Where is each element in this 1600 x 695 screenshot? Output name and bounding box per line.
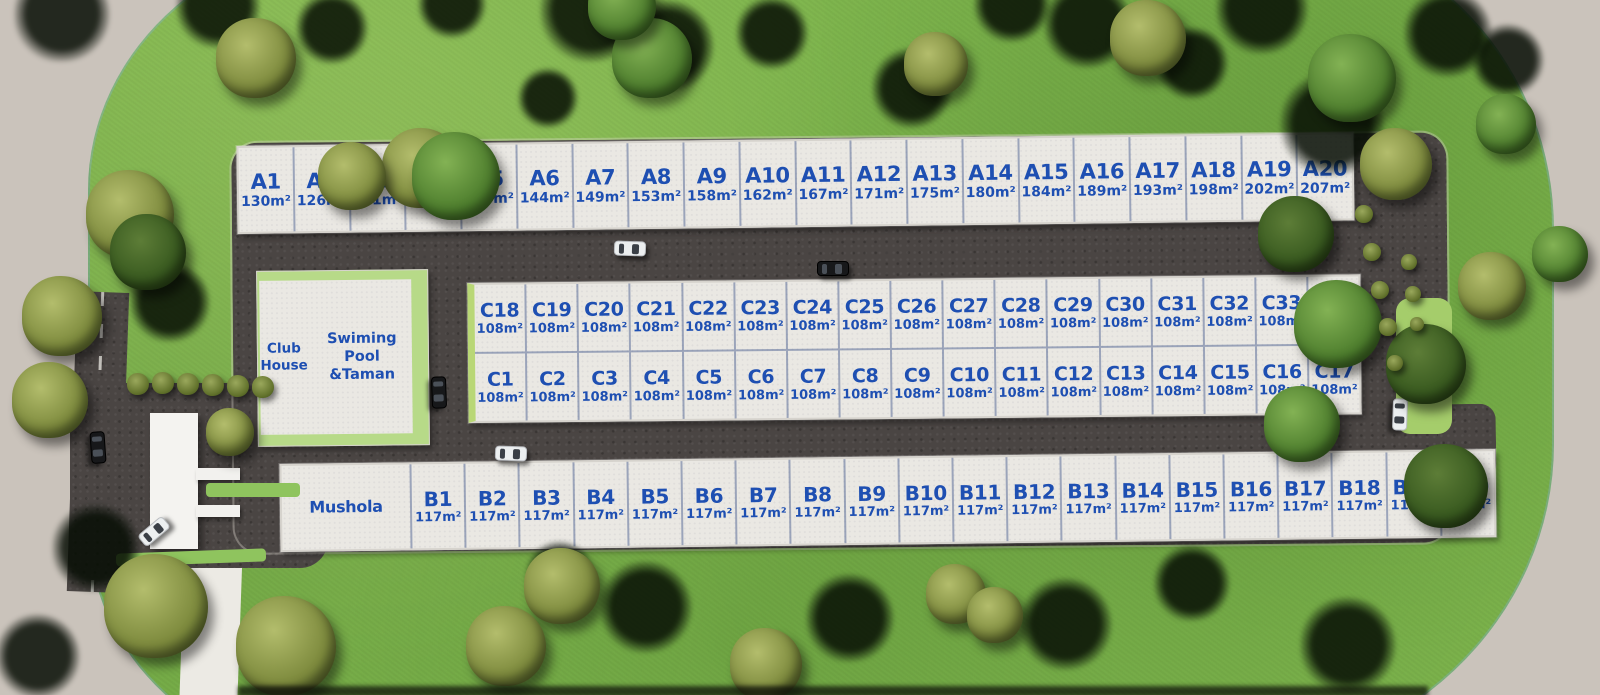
car [89,431,106,464]
plot-A8[interactable]: A8153m² [627,143,684,228]
plot-area: 108m² [1050,316,1097,329]
plot-area: 108m² [789,319,836,332]
plot-B15[interactable]: B15117m² [1168,454,1223,539]
tree [1258,196,1334,272]
entry-median-green [206,483,300,497]
plot-area: 108m² [946,317,993,330]
plot-id: B13 [1067,480,1109,501]
plot-A9[interactable]: A9158m² [682,142,739,227]
tree [12,362,88,438]
tree [110,214,186,290]
plot-area: 117m² [1336,499,1383,513]
plot-id: C11 [1002,365,1042,384]
plot-area: 108m² [685,320,732,333]
plot-area: 117m² [1282,500,1329,514]
bush [1355,205,1373,223]
plot-area: 117m² [957,504,1004,518]
plot-B12[interactable]: B12117m² [1006,456,1061,541]
plot-C20[interactable]: C20108m² [577,283,630,350]
plot-area: 108m² [581,321,628,334]
plot-id: A7 [585,167,616,188]
plot-area: 117m² [1228,500,1275,514]
plot-area: 108m² [633,320,680,333]
plot-C19[interactable]: C19108m² [524,284,577,351]
plot-id: C12 [1054,364,1094,383]
pool-parcel-inner: Club House Swiming Pool &Taman [259,279,413,435]
plot-A18[interactable]: A18198m² [1184,136,1241,221]
tree-shadow [1020,578,1112,670]
row-c-front: C1108m²C2108m²C3108m²C4108m²C5108m²C6108… [475,343,1360,420]
tree-shadow [736,0,808,69]
plot-C8[interactable]: C8108m² [838,350,891,417]
plot-id: C28 [1001,296,1041,315]
tree [1264,386,1340,462]
plot-C3[interactable]: C3108m² [577,352,630,419]
plot-A12[interactable]: A12171m² [850,140,907,225]
tree [904,32,968,96]
bush [1405,286,1421,302]
plot-id: C16 [1262,362,1302,381]
plot-C28[interactable]: C28108m² [994,279,1047,346]
plot-C29[interactable]: C29108m² [1046,279,1099,346]
plot-area: 117m² [632,508,679,522]
plot-id: B4 [586,486,615,506]
tree [1360,128,1432,200]
plot-B18[interactable]: B18117m² [1331,452,1386,537]
plot-area: 108m² [477,391,524,404]
tree [967,587,1023,643]
gate-arm [196,468,240,480]
plot-area: 184m² [1021,184,1071,199]
plot-id: A8 [641,166,672,187]
plot-A16[interactable]: A16189m² [1073,137,1130,222]
plot-area: 198m² [1189,182,1239,197]
car [431,376,447,409]
plot-area: 117m² [794,506,841,520]
plot-area: 117m² [740,506,787,520]
plot-area: 117m² [415,510,462,524]
plot-id: B10 [905,482,947,503]
plot-area: 108m² [737,319,784,332]
plot-C15[interactable]: C15108m² [1203,346,1256,413]
tree [104,554,208,658]
plot-area: 108m² [581,390,628,403]
plot-C23[interactable]: C23108m² [733,282,786,349]
plot-C13[interactable]: C13108m² [1098,347,1151,414]
tree-shadow [1300,597,1396,693]
bottom-edge-shadow [238,686,1428,695]
plot-area: 108m² [790,388,837,401]
tree-shadow [1472,24,1544,96]
plot-id: C2 [539,370,566,389]
plot-C27[interactable]: C27108m² [941,280,994,347]
plot-A13[interactable]: A13175m² [905,139,962,224]
plot-B3[interactable]: B3117m² [518,462,573,547]
plot-C30[interactable]: C30108m² [1098,278,1151,345]
plot-C22[interactable]: C22108m² [681,282,734,349]
plot-id: C30 [1105,295,1145,314]
bush [227,375,249,397]
plot-C24[interactable]: C24108m² [785,281,838,348]
plot-id: C4 [643,369,670,388]
plot-C1[interactable]: C1108m² [475,353,526,420]
plot-id: C14 [1158,363,1198,382]
tree [206,408,254,456]
tree [1110,0,1186,76]
tree [1404,444,1488,528]
bush [1387,355,1403,371]
plot-id: A12 [857,163,902,185]
plot-id: B9 [857,483,886,503]
tree-shadow [1154,545,1230,621]
plot-B4[interactable]: B4117m² [572,462,627,547]
tree [466,606,546,686]
plot-id: C5 [695,368,722,387]
bush [127,373,149,395]
tree [730,628,802,695]
swimming-pool-label: Swiming Pool &Taman [312,329,413,384]
tree [1476,94,1536,154]
plot-area: 117m² [523,509,570,523]
plot-id: C8 [852,367,879,386]
plot-id: A18 [1191,159,1236,181]
plot-B14[interactable]: B14117m² [1114,455,1169,540]
bush [1379,318,1397,336]
plot-mushola[interactable]: Mushola [281,464,410,550]
plot-id: C21 [636,300,676,319]
plot-C11[interactable]: C11108m² [994,348,1047,415]
plot-B11[interactable]: B11117m² [951,457,1006,542]
plot-A17[interactable]: A17193m² [1128,136,1185,221]
plot-area: 108m² [842,387,889,400]
tree [216,18,296,98]
plot-area: 108m² [1155,384,1202,397]
tree [1294,280,1382,368]
bush [177,373,199,395]
plot-area: 117m² [903,504,950,518]
tree [412,132,500,220]
plot-id: A13 [912,163,957,185]
plot-id: B5 [640,486,669,506]
plot-id: B18 [1338,477,1380,498]
plot-id: A10 [745,165,790,187]
plot-id: C15 [1210,363,1250,382]
siteplan-scene: Club House Swiming Pool &Taman A1130m²A2… [0,0,1600,695]
plot-B13[interactable]: B13117m² [1060,456,1115,541]
plot-id: C25 [845,298,885,317]
plot-area: 108m² [841,318,888,331]
plot-id: B3 [532,487,561,507]
plot-area: 167m² [798,187,848,202]
tree [1308,34,1396,122]
plot-B1[interactable]: B1117m² [409,464,464,549]
tree [22,276,102,356]
plot-area: 153m² [631,189,681,204]
plot-id: C7 [800,367,827,386]
plot-area: 175m² [910,186,960,201]
plot-area: 171m² [854,186,904,201]
plot-id: B6 [695,485,724,505]
plot-area: 117m² [849,505,896,519]
plot-B8[interactable]: B8117m² [789,459,844,544]
c-block-strip: C18108m²C19108m²C20108m²C21108m²C22108m²… [467,274,1361,423]
plot-id: C19 [532,301,572,320]
car [817,261,849,276]
plot-C10[interactable]: C10108m² [942,349,995,416]
plot-id: C10 [950,365,990,384]
row-c-back: C18108m²C19108m²C20108m²C21108m²C22108m²… [474,276,1359,351]
plot-area: 180m² [966,185,1016,200]
plot-id: A16 [1080,161,1125,183]
plot-A14[interactable]: A14180m² [961,138,1018,223]
plot-id: B11 [959,482,1001,503]
plot-C2[interactable]: C2108m² [525,353,578,420]
plot-area: 207m² [1300,181,1350,196]
plot-area: 108m² [894,387,941,400]
plot-area: 108m² [998,386,1045,399]
plot-id: C20 [584,300,624,319]
plot-area: 108m² [738,388,785,401]
plot-C25[interactable]: C25108m² [837,281,890,348]
plot-id: A11 [801,164,846,186]
plot-area: 108m² [529,321,576,334]
plot-id: B1 [424,488,453,508]
plot-area: 117m² [1011,503,1058,517]
plot-C14[interactable]: C14108m² [1151,347,1204,414]
plot-area: 130m² [241,194,291,209]
plot-C9[interactable]: C9108m² [890,349,943,416]
plot-id: C23 [740,299,780,318]
car [495,445,528,461]
plot-id: B17 [1284,478,1326,499]
plot-area: 117m² [1174,501,1221,515]
plot-area: 193m² [1133,183,1183,198]
plot-id: A14 [968,162,1013,184]
plot-B9[interactable]: B9117m² [843,458,898,543]
mushola-label: Mushola [309,499,383,516]
plot-id: C27 [949,297,989,316]
plot-id: C9 [904,366,931,385]
tree-shadow [600,561,692,653]
plot-id: A15 [1024,161,1069,183]
plot-B16[interactable]: B16117m² [1222,454,1277,539]
plot-id: C32 [1210,294,1250,313]
plot-id: B14 [1121,480,1163,501]
plot-C18[interactable]: C18108m² [474,284,525,351]
plot-C32[interactable]: C32108m² [1202,277,1255,344]
plot-area: 108m² [946,386,993,399]
plot-id: A6 [529,168,560,189]
tree [236,596,336,695]
plot-area: 117m² [1065,502,1112,516]
plot-A15[interactable]: A15184m² [1017,138,1074,223]
plot-area: 108m² [894,318,941,331]
plot-area: 108m² [1051,385,1098,398]
bush [1401,254,1417,270]
tree [318,142,386,210]
plot-area: 108m² [634,389,681,402]
plot-C21[interactable]: C21108m² [629,283,682,350]
plot-area: 162m² [743,188,793,203]
plot-area: 202m² [1244,182,1294,197]
tree-shadow [0,614,80,695]
bush [202,374,224,396]
plot-area: 108m² [1103,385,1150,398]
plot-A11[interactable]: A11167m² [794,141,851,226]
car [614,240,647,256]
plot-area: 149m² [575,190,625,205]
plot-A1[interactable]: A1130m² [238,147,293,232]
plot-id: A19 [1247,159,1292,181]
plot-B10[interactable]: B10117m² [897,458,952,543]
tree-shadow [806,574,894,662]
plot-area: 108m² [686,389,733,402]
plot-area: 117m² [686,507,733,521]
plot-C5[interactable]: C5108m² [681,351,734,418]
tree [524,548,600,624]
bush [1371,281,1389,299]
plot-id: B8 [803,484,832,504]
plot-C12[interactable]: C12108m² [1046,348,1099,415]
plot-C31[interactable]: C31108m² [1150,278,1203,345]
plot-id: C29 [1053,296,1093,315]
plot-id: C3 [591,369,618,388]
plot-A6[interactable]: A6144m² [515,144,572,229]
plot-area: 117m² [578,508,625,522]
bush [1410,317,1424,331]
car [1392,398,1408,431]
plot-C26[interactable]: C26108m² [889,280,942,347]
plot-id: C22 [688,299,728,318]
plot-B7[interactable]: B7117m² [735,460,790,545]
plot-id: C13 [1106,364,1146,383]
plot-area: 108m² [1102,316,1149,329]
plot-id: C24 [793,298,833,317]
plot-C7[interactable]: C7108m² [786,350,839,417]
plot-id: B7 [749,484,778,504]
plot-area: 158m² [687,188,737,203]
plot-area: 189m² [1077,184,1127,199]
tree [1532,226,1588,282]
plot-id: A17 [1135,160,1180,182]
plot-id: C31 [1157,295,1197,314]
bush [152,372,174,394]
plot-area: 108m² [529,390,576,403]
club-house-label: Club House [260,340,308,374]
tree [1458,252,1526,320]
plot-id: C6 [748,368,775,387]
plot-area: 108m² [477,322,524,335]
plot-area: 108m² [1207,384,1254,397]
tree-shadow [518,68,578,128]
plot-B6[interactable]: B6117m² [680,460,735,545]
plot-B5[interactable]: B5117m² [626,461,681,546]
plot-id: C26 [897,297,937,316]
plot-C6[interactable]: C6108m² [734,351,787,418]
plot-area: 117m² [469,510,516,524]
plot-area: 108m² [1154,315,1201,328]
plot-id: A1 [251,171,282,192]
plot-id: B16 [1230,478,1272,499]
plot-C4[interactable]: C4108m² [629,352,682,419]
bush [1363,243,1381,261]
plot-A7[interactable]: A7149m² [571,143,628,228]
plot-id: B2 [478,488,507,508]
plot-area: 144m² [520,190,570,205]
plot-id: B15 [1176,479,1218,500]
tree-shadow [14,0,110,62]
plot-area: 108m² [1206,315,1253,328]
plot-id: C1 [487,370,514,389]
bush [252,376,274,398]
row-b-strip: Mushola B1117m²B2117m²B3117m²B4117m²B511… [279,449,1496,552]
plot-area: 117m² [1120,502,1167,516]
plot-B2[interactable]: B2117m² [464,463,519,548]
plot-B17[interactable]: B17117m² [1277,453,1332,538]
plot-area: 108m² [998,317,1045,330]
plot-A10[interactable]: A10162m² [738,141,795,226]
plot-id: C18 [480,301,520,320]
gate-arm [196,505,240,517]
plot-id: B12 [1013,481,1055,502]
plot-id: A9 [696,166,727,187]
pool-parcel[interactable]: Club House Swiming Pool &Taman [256,269,430,447]
